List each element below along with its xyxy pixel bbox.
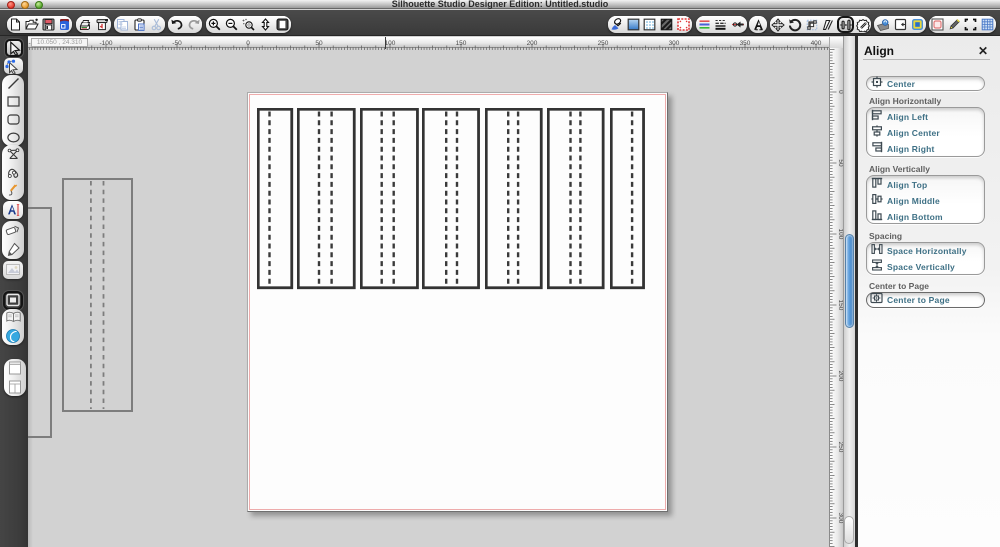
svg-text:300: 300 bbox=[669, 40, 680, 47]
svg-text:250: 250 bbox=[598, 40, 609, 47]
svg-text:100: 100 bbox=[385, 40, 396, 47]
svg-text:200: 200 bbox=[527, 40, 538, 47]
svg-text:50: 50 bbox=[315, 40, 323, 47]
svg-text:-100: -100 bbox=[99, 40, 112, 47]
svg-text:0: 0 bbox=[246, 40, 250, 47]
svg-text:400: 400 bbox=[811, 40, 822, 47]
svg-text:-50: -50 bbox=[172, 40, 182, 47]
svg-text:350: 350 bbox=[740, 40, 751, 47]
svg-text:150: 150 bbox=[456, 40, 467, 47]
